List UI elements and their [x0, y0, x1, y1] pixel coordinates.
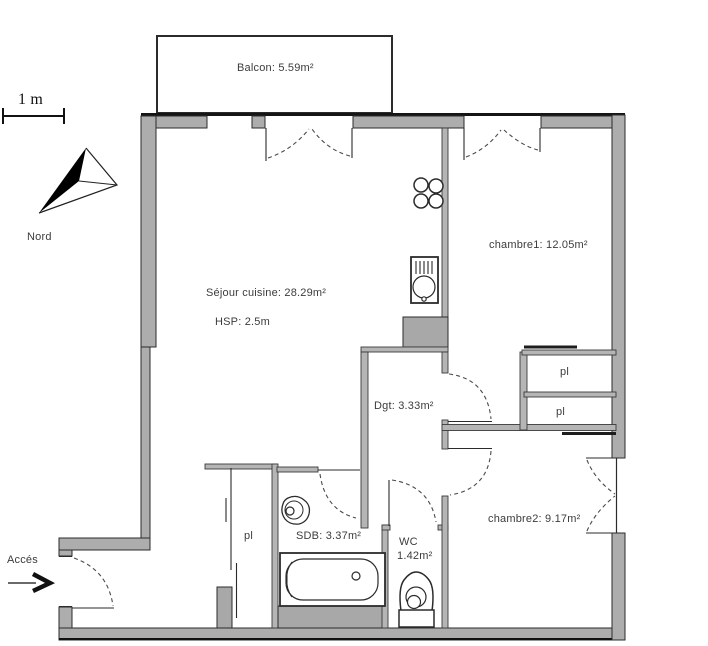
scale-bar [3, 108, 64, 124]
room-label-wc: WC [399, 536, 418, 548]
room-label-hallway: Dgt: 3.33m² [374, 400, 434, 412]
closet2-label: pl [556, 406, 565, 418]
floor-plan-drawing [0, 0, 708, 646]
wc-area-label: 1.42m² [397, 550, 432, 562]
room-label-bedroom1: chambre1: 12.05m² [489, 239, 588, 251]
ceiling-height-label: HSP: 2.5m [215, 316, 270, 328]
balcony-outline [157, 36, 392, 113]
north-label: Nord [27, 231, 52, 243]
floor-plan: 1 m Nord Balcon: 5.59m² Séjour cuisine: … [0, 0, 708, 646]
washbasin-icon [282, 496, 310, 524]
room-label-bathroom: SDB: 3.37m² [296, 530, 361, 542]
room-label-balcony: Balcon: 5.59m² [237, 62, 314, 74]
kitchen-sink-icon [411, 257, 438, 303]
north-arrow-icon [39, 148, 117, 213]
access-arrow-icon [8, 574, 50, 591]
closet-entry-label: pl [244, 530, 253, 542]
room-label-living: Séjour cuisine: 28.29m² [206, 287, 326, 299]
closet1-label: pl [560, 366, 569, 378]
room-label-bedroom2: chambre2: 9.17m² [488, 513, 580, 525]
cooktop-icon [414, 178, 443, 208]
bathtub-icon [280, 553, 385, 606]
toilet-icon [399, 572, 434, 627]
scale-label: 1 m [18, 91, 43, 109]
access-label: Accés [7, 554, 38, 566]
